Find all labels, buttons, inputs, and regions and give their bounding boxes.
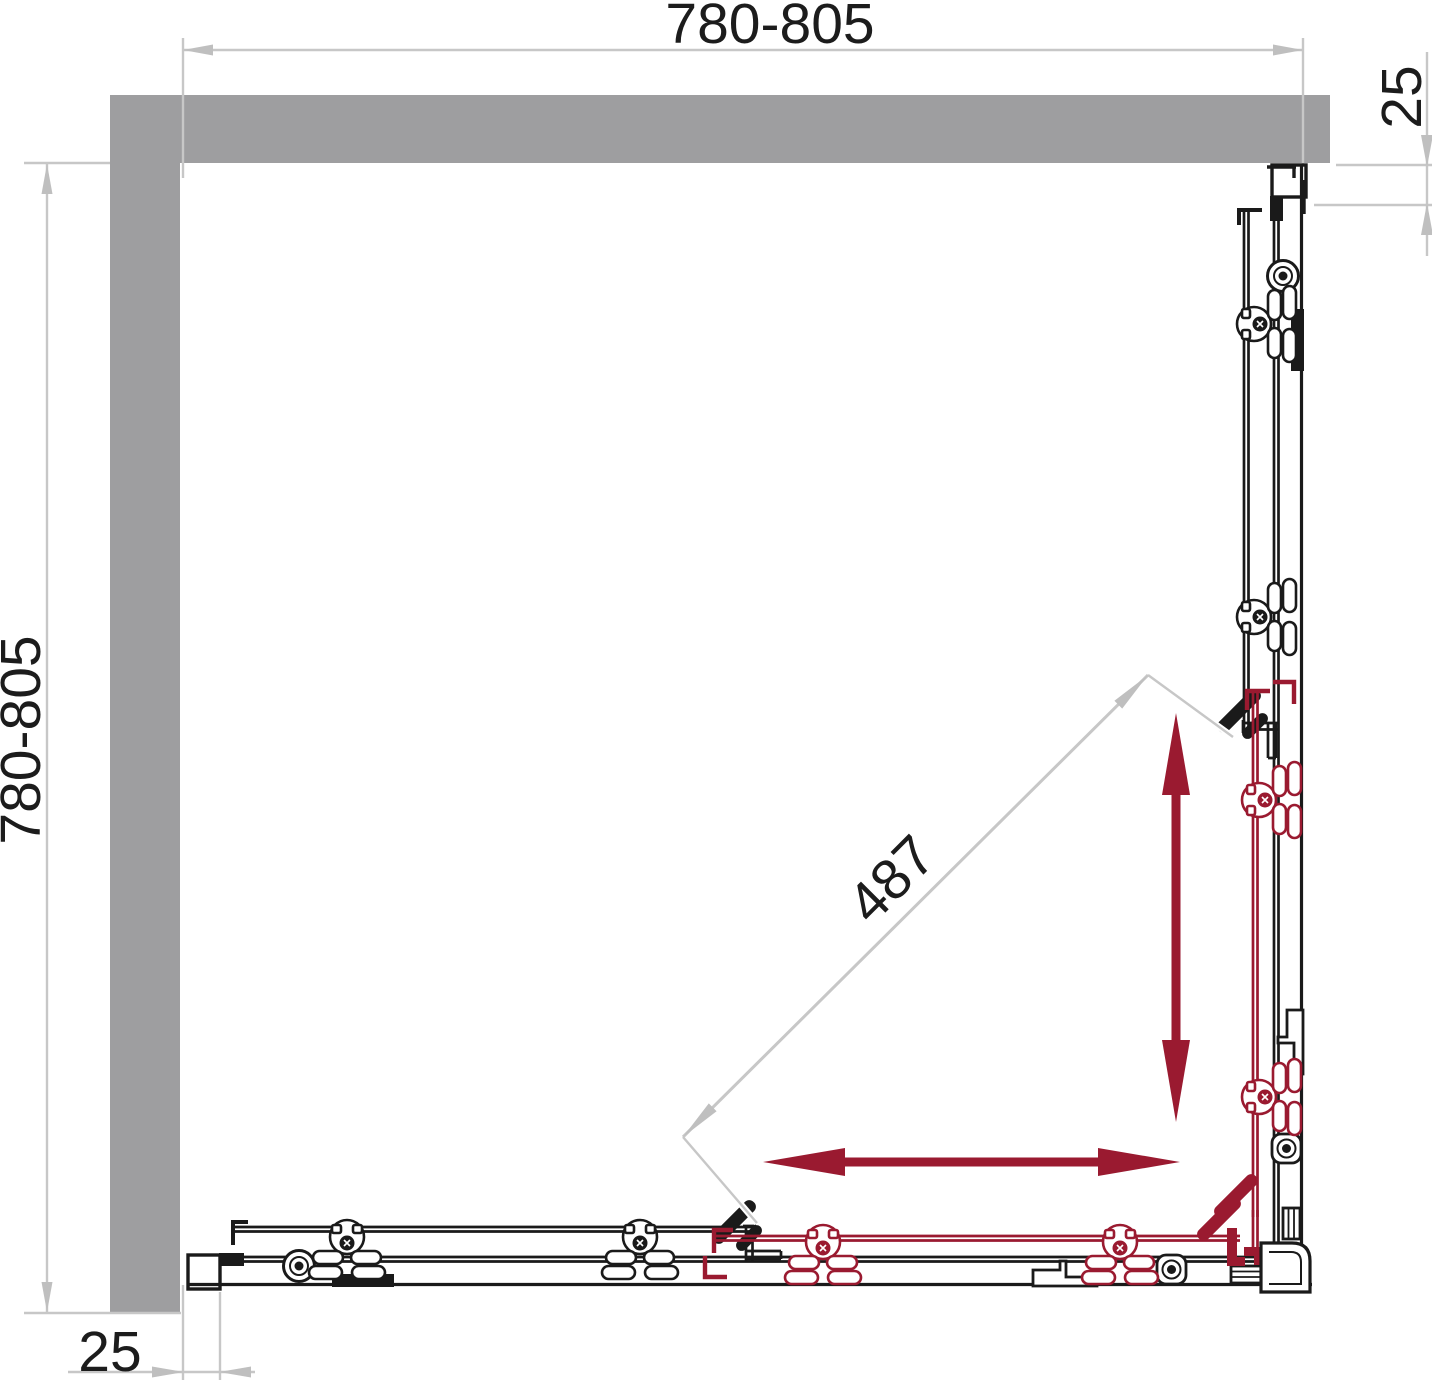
technical-drawing-page: 780-805 780-805 25 25 487 [0,0,1432,1382]
dim-line-diagonal [683,675,1148,1137]
arrow-top-right [1273,45,1303,56]
dimension-lines [24,38,1432,1380]
arrow-left-top [42,164,53,194]
arrow-bl25-left [219,1367,251,1378]
walls [110,95,1330,1313]
dim-label-offset-top-right: 25 [1370,65,1432,128]
bottom-door-assembly [187,1195,1312,1289]
dim-label-left-depth: 780-805 [0,635,53,844]
slide-arrow-vertical [1162,713,1190,1122]
arrow-tr25-up [1421,203,1432,235]
dim-label-top-width: 780-805 [665,0,874,56]
corner-rail-extension [1253,1210,1258,1253]
slide-direction-arrows [763,713,1190,1176]
arrow-bl25-right [152,1367,184,1378]
arrow-left-bottom [42,1282,53,1312]
arrow-diagonal-upper [1114,675,1148,709]
slide-arrow-horizontal [763,1148,1180,1176]
dim-label-diagonal: 487 [835,823,948,936]
door-corner-cap-horizontal [1227,1228,1245,1266]
dim-label-offset-bottom-left: 25 [78,1320,141,1382]
arrow-top-left [183,45,213,56]
shower-enclosure-plan-drawing: 780-805 780-805 25 25 487 [0,0,1432,1382]
diagonal-casing [683,675,1233,1223]
arrow-tr25-down [1421,135,1432,167]
left-wall [110,95,180,1313]
arrow-diagonal-lower [683,1103,717,1137]
diagonal-dimension [683,675,1233,1223]
diagonal-extension-stubs [683,675,1233,1223]
top-wall [110,95,1330,163]
dimension-arrowheads [42,45,1432,1378]
right-door-assembly [1212,164,1306,1289]
